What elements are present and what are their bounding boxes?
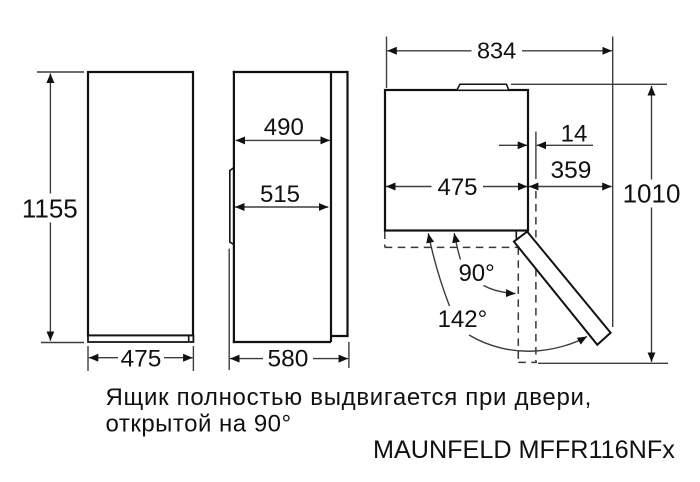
svg-text:открытой на 90°: открытой на 90° xyxy=(106,410,292,437)
svg-text:142°: 142° xyxy=(438,306,488,333)
svg-text:515: 515 xyxy=(260,181,300,208)
svg-text:MAUNFELD MFFR116NFx: MAUNFELD MFFR116NFx xyxy=(373,436,675,464)
svg-text:1010: 1010 xyxy=(623,179,681,209)
svg-text:90°: 90° xyxy=(458,260,494,287)
svg-text:475: 475 xyxy=(437,174,477,201)
svg-text:834: 834 xyxy=(477,38,516,64)
svg-text:1155: 1155 xyxy=(22,193,78,223)
svg-text:359: 359 xyxy=(551,157,592,184)
svg-text:475: 475 xyxy=(121,346,162,373)
svg-text:Ящик полностью выдвигается при: Ящик полностью выдвигается при двери, xyxy=(106,384,592,411)
svg-text:490: 490 xyxy=(264,114,304,141)
svg-text:580: 580 xyxy=(267,346,308,373)
svg-text:14: 14 xyxy=(561,121,588,148)
